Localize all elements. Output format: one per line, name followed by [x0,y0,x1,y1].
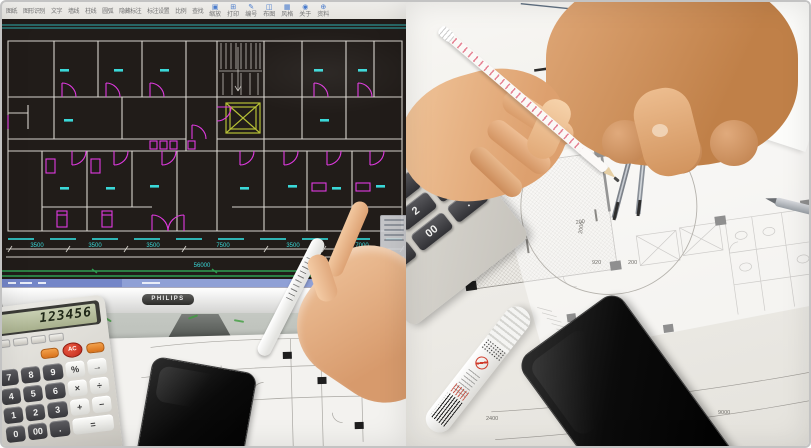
calculator-key: + [69,398,90,416]
cad-menu-item: 墙线 [68,6,79,15]
right-photo-drafting: 200 2000 920 200 2400 9000 30700 7894561… [406,2,809,446]
calculator-key: = [71,414,114,435]
cad-menu: 图纸图形识别文字墙线柱线圆弧隐藏标注标注设置比例查找 [6,6,203,15]
cad-toolbar-button: ⊞ 打印 [227,4,239,18]
cad-menu-item: 比例 [175,6,186,15]
cad-menu-item: 标注设置 [147,6,169,15]
calculator-key: → [87,358,108,376]
cad-menu-item: 查找 [192,6,203,15]
cad-menu-item: 图纸 [6,6,17,15]
compass-needle [614,202,618,220]
calculator: 123456 AC 789%→456×÷123+−000.= [2,294,123,446]
cad-menu-item: 隐藏标注 [119,6,141,15]
toolbar-icon: ▦ [284,4,291,11]
toolbar-icon: ✎ [248,4,254,11]
calculator-key: 4 [2,387,22,405]
calculator-key: % [65,360,86,378]
knuckle [710,120,758,166]
cad-toolbar-button: ✎ 编号 [245,4,257,18]
cad-toolbar-button: ⊕ 资料 [317,4,329,18]
calculator-key: 9 [43,363,64,381]
cad-icon-menu: ▣ 缩放 ⊞ 打印 ✎ 编号 ◫ 布图 ▦ 风格 ◉ 关于 [209,4,329,18]
cad-menu-item: 柱线 [85,6,96,15]
calculator-key: 1 [3,406,24,424]
calculator-key: 8 [20,366,41,384]
calculator-key: 00 [27,422,48,440]
cad-toolbar-button: ▣ 缩放 [209,4,221,18]
calculator-orange-key [40,347,59,359]
toolbar-icon: ⊕ [320,4,326,11]
calculator-key: 7 [2,368,19,386]
cad-toolbar: 图纸图形识别文字墙线柱线圆弧隐藏标注标注设置比例查找 ▣ 缩放 ⊞ 打印 ✎ 编… [2,2,406,20]
cad-menu-item: 文字 [51,6,62,15]
calculator-key: 5 [23,385,44,403]
cad-menu-item: 圆弧 [102,6,113,15]
thumbnail [652,124,668,137]
calculator-key: × [67,379,88,397]
calculator-key: 6 [45,382,66,400]
calculator-key: − [91,395,112,413]
calculator-keypad: 789%→456×÷123+−000.= [2,358,115,444]
compass-lead [638,200,640,216]
calculator-key: . [49,420,70,438]
monitor-brand-logo: PHILIPS [142,294,194,305]
photo-collage: 图纸图形识别文字墙线柱线圆弧隐藏标注标注设置比例查找 ▣ 缩放 ⊞ 打印 ✎ 编… [0,0,811,448]
calculator-orange-key [86,341,105,353]
calculator-ac-key: AC [62,341,84,358]
toolbar-icon: ◫ [266,4,273,11]
calculator-key: 2 [25,403,46,421]
cad-menu-item: 图形识别 [23,6,45,15]
toolbar-icon: ◉ [302,4,308,11]
toolbar-icon: ▣ [212,4,219,11]
calculator-key: 3 [47,401,68,419]
cad-toolbar-button: ▦ 风格 [281,4,293,18]
calculator-key: ÷ [89,376,110,394]
calculator-key: 0 [5,425,26,443]
cad-toolbar-button: ◉ 关于 [299,4,311,18]
cad-toolbar-button: ◫ 布图 [263,4,275,18]
toolbar-icon: ⊞ [230,4,236,11]
left-photo-cad-workstation: 图纸图形识别文字墙线柱线圆弧隐藏标注标注设置比例查找 ▣ 缩放 ⊞ 打印 ✎ 编… [2,2,406,446]
